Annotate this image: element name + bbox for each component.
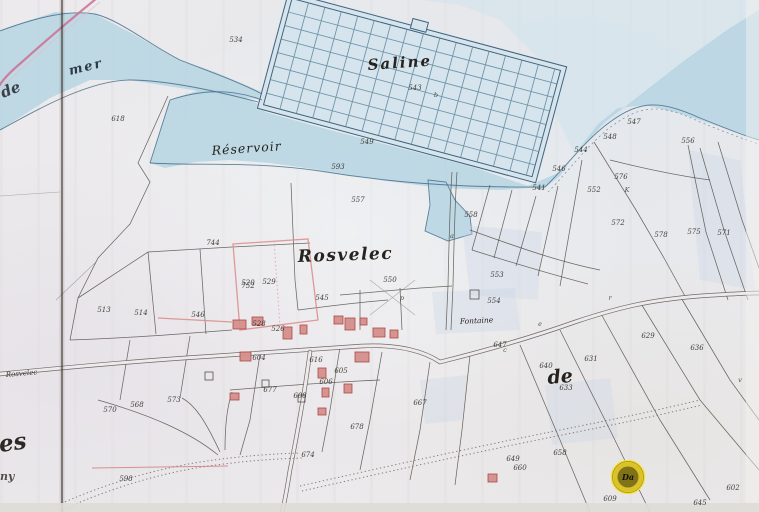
- parcel-number: 631: [584, 355, 597, 363]
- parcel-number: 514: [134, 309, 147, 317]
- label-fontaine: Fontaine: [459, 315, 494, 326]
- parcel-number: 541: [532, 184, 545, 192]
- parcel-number: 557: [351, 196, 365, 204]
- parcel-number: 575: [687, 228, 701, 236]
- parcel-number: 636: [690, 344, 704, 352]
- parcel-number: 640: [539, 362, 553, 370]
- parcel-number: 552: [587, 186, 601, 194]
- parcel-number: 548: [603, 133, 617, 141]
- parcel-number: 513: [97, 306, 111, 314]
- parcel-number: 547: [627, 118, 641, 126]
- parcel-number: 609: [603, 495, 617, 503]
- label-rosvelec: Rosvelec: [296, 244, 393, 267]
- section-letter: e: [538, 320, 542, 328]
- parcel-number: 677: [263, 386, 277, 394]
- parcel-number: 570: [103, 406, 117, 414]
- cadastral-map-canvas[interactable]: de mer Saline Réservoir Rosvelec Fontain…: [0, 0, 759, 512]
- parcel-number: 550: [383, 276, 397, 284]
- parcel-number: 598: [119, 475, 133, 483]
- section-letter: a: [450, 232, 454, 240]
- parcel-number: 576: [614, 173, 628, 181]
- label-road-name: Rosvelec: [4, 368, 37, 379]
- parcel-number: 678: [350, 423, 364, 431]
- parcel-number: 529: [262, 278, 276, 286]
- parcel-number: 558: [464, 211, 478, 219]
- parcel-number: 618: [111, 115, 125, 123]
- parcel-number: 546: [552, 165, 566, 173]
- parcel-number: 546: [191, 311, 205, 319]
- parcel-number: 605: [334, 367, 348, 375]
- parcel-number: 602: [726, 484, 740, 492]
- parcel-number: 544: [574, 146, 587, 154]
- roads-layer: [0, 293, 759, 512]
- label-es: es: [0, 427, 28, 458]
- parcel-number: 633: [559, 384, 573, 392]
- parcel-number: 674: [301, 451, 314, 459]
- parcel-number: 571: [717, 229, 730, 237]
- parcel-number: 545: [315, 294, 329, 302]
- parcel-number: 554: [487, 297, 500, 305]
- parcel-number: 645: [693, 499, 707, 507]
- parcel-number: 528: [252, 320, 266, 328]
- parcel-number: 593: [331, 163, 345, 171]
- section-letter: K: [624, 186, 631, 194]
- parcel-number: 667: [413, 399, 427, 407]
- parcel-number: 556: [681, 137, 695, 145]
- parcel-number: 520: [241, 279, 255, 287]
- label-ny: ny: [0, 470, 16, 483]
- parcel-number: 543: [408, 84, 422, 92]
- parcel-number: 608: [293, 392, 307, 400]
- section-letter: r: [608, 294, 612, 302]
- section-letter: p: [400, 294, 405, 302]
- parcel-number: 549: [360, 138, 374, 146]
- parcel-number: 629: [641, 332, 655, 340]
- parcel-number: 553: [490, 271, 504, 279]
- parcel-number: 604: [252, 354, 265, 362]
- parcel-number: 649: [506, 455, 520, 463]
- parcel-number: 534: [229, 36, 242, 44]
- parcel-number: 572: [611, 219, 625, 227]
- parcel-number: 660: [513, 464, 527, 472]
- parcel-number: 568: [130, 401, 144, 409]
- parcel-number: 616: [309, 356, 323, 364]
- section-letter: b: [434, 91, 438, 99]
- parcel-number: 658: [553, 449, 567, 457]
- poi-marker[interactable]: Da: [612, 461, 644, 493]
- parcel-number: 744: [206, 239, 219, 247]
- section-letter: v: [738, 376, 742, 384]
- map-drawing: de mer Saline Réservoir Rosvelec Fontain…: [0, 0, 759, 512]
- poi-marker-label: Da: [621, 472, 634, 482]
- parcel-number: 606: [319, 378, 333, 386]
- parcel-number: 573: [167, 396, 181, 404]
- parcel-number: 578: [654, 231, 668, 239]
- section-letter: c: [503, 346, 507, 354]
- parcel-number: 526: [271, 325, 285, 333]
